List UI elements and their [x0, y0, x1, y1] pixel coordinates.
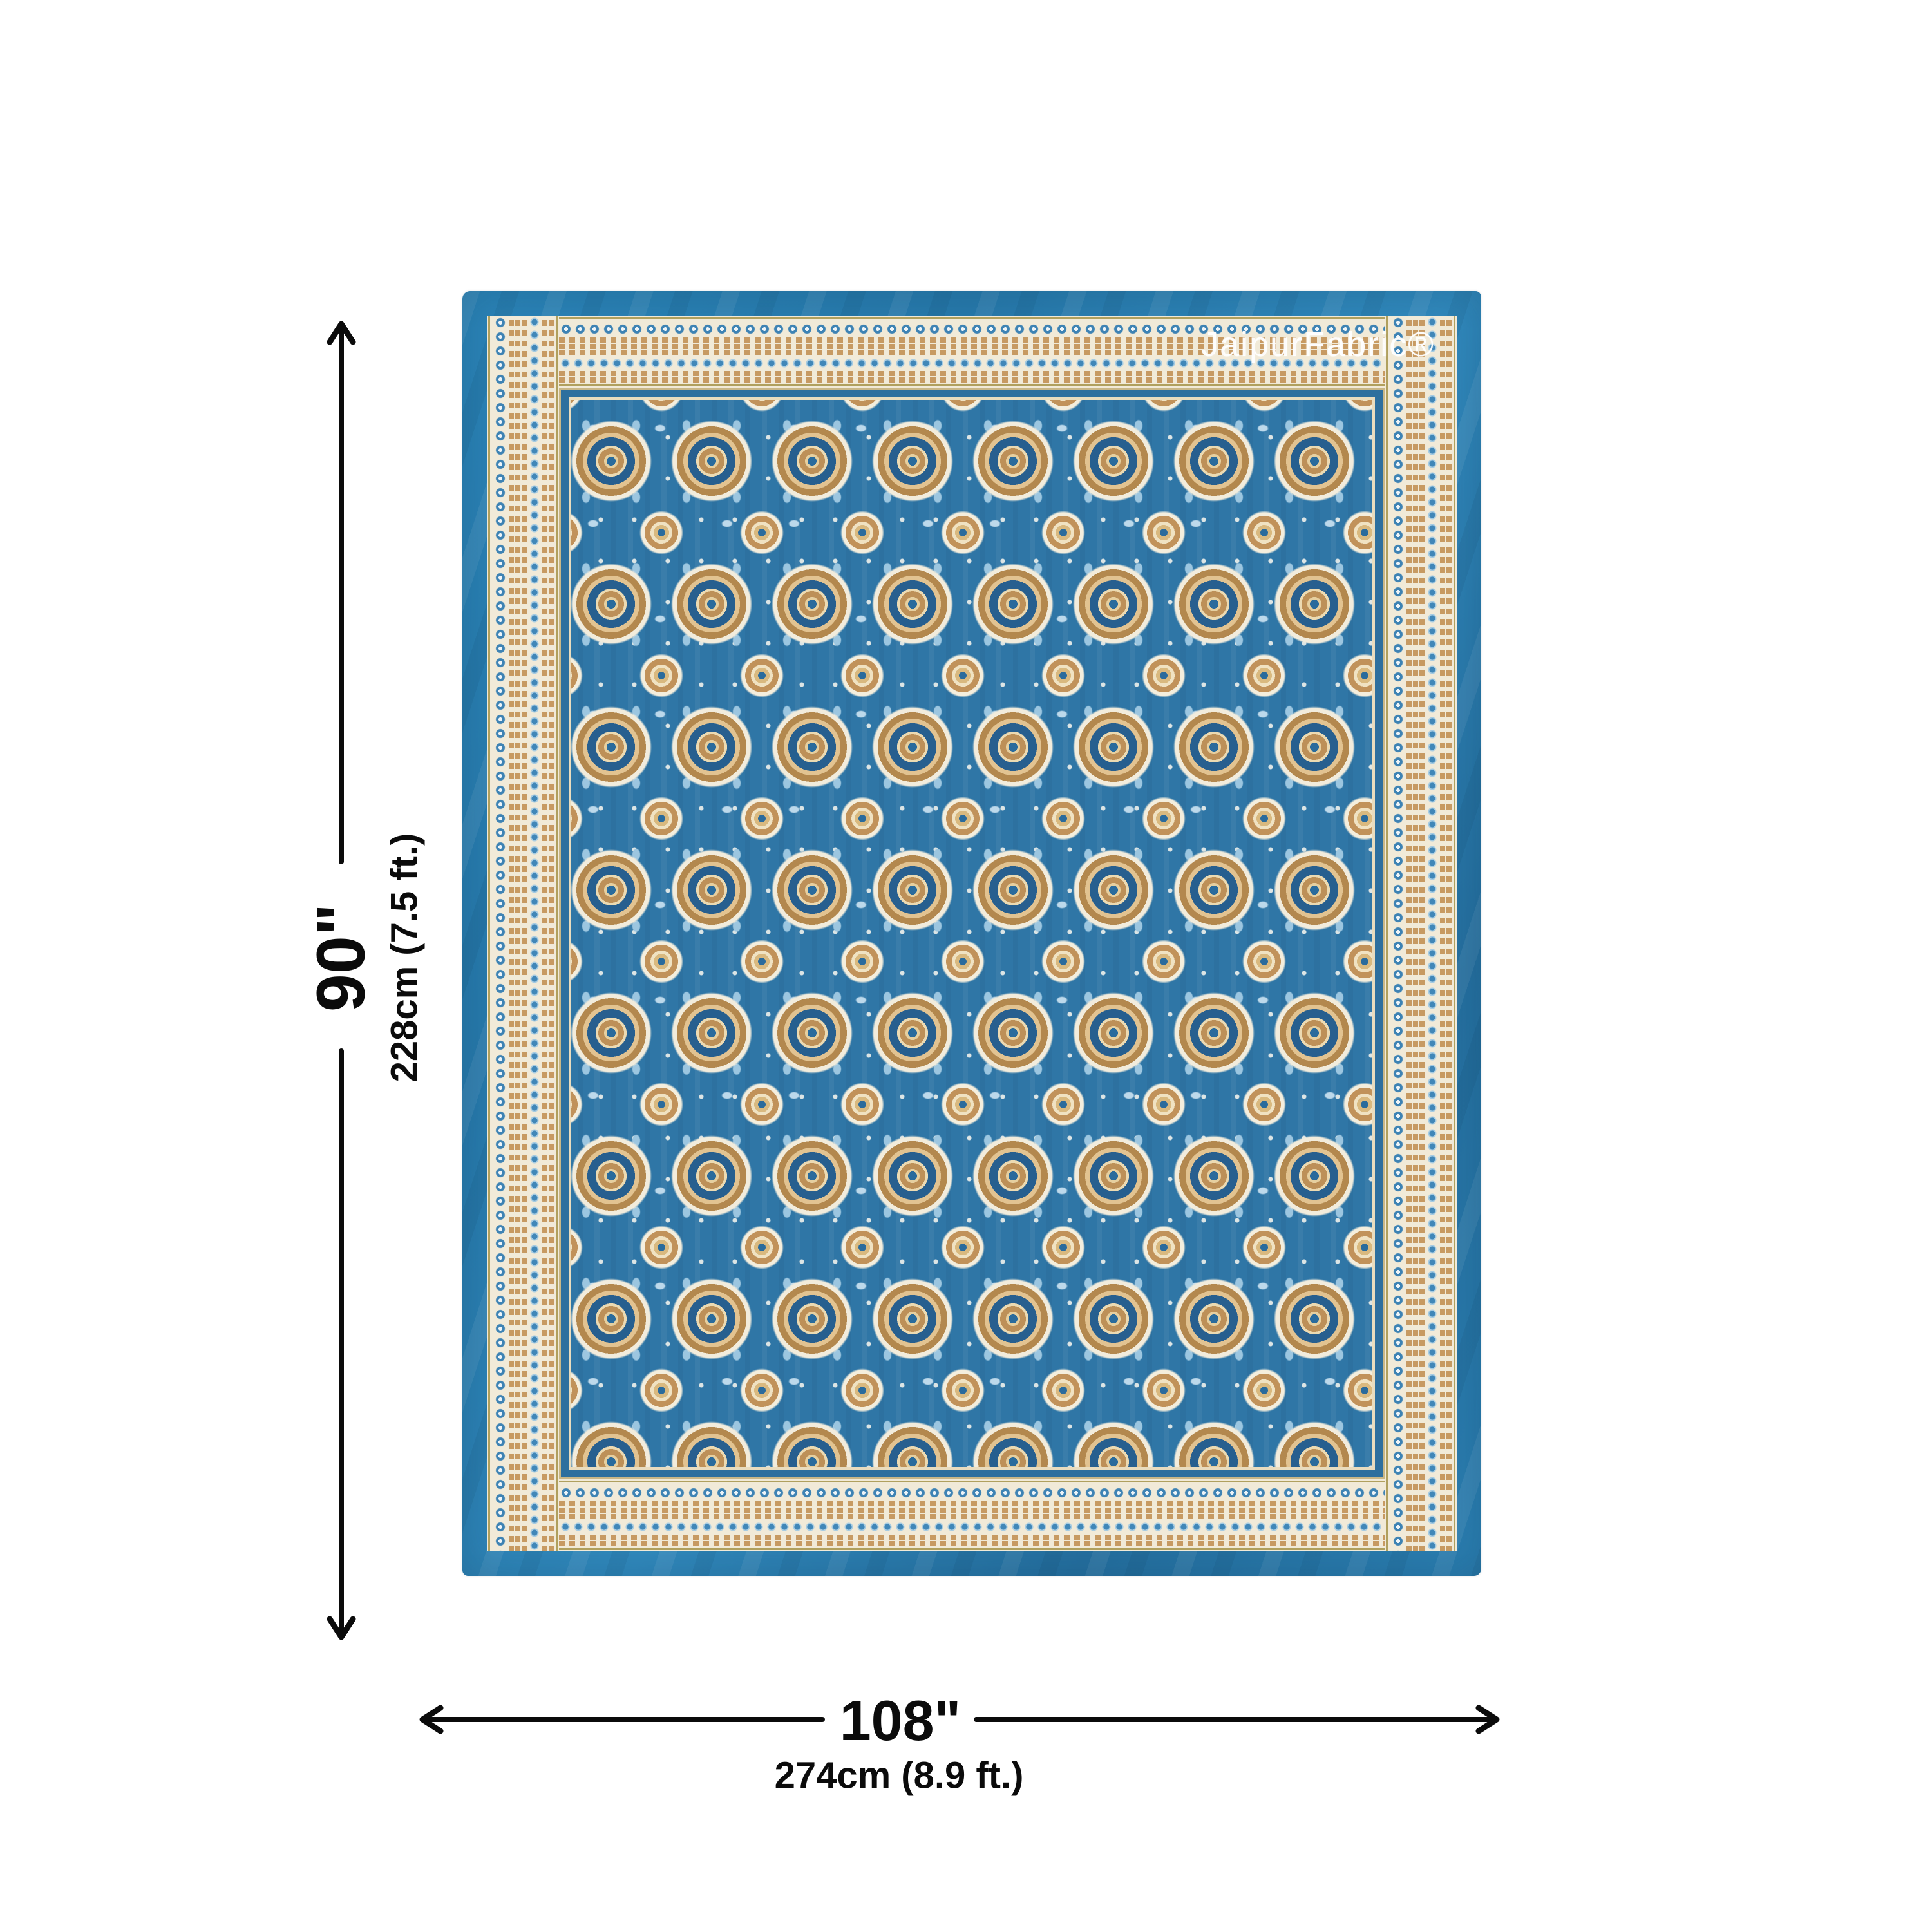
dimension-annotations	[0, 0, 1932, 1932]
width-label-metric: 274cm (8.9 ft.)	[775, 1754, 1024, 1797]
product-dimension-image: JaipurFabric® 90" 228cm (7.5 ft.) 108" 2…	[0, 0, 1932, 1932]
width-label-inches: 108"	[840, 1688, 961, 1754]
height-label-inches: 90"	[303, 904, 381, 1012]
height-label-metric: 228cm (7.5 ft.)	[383, 833, 426, 1083]
